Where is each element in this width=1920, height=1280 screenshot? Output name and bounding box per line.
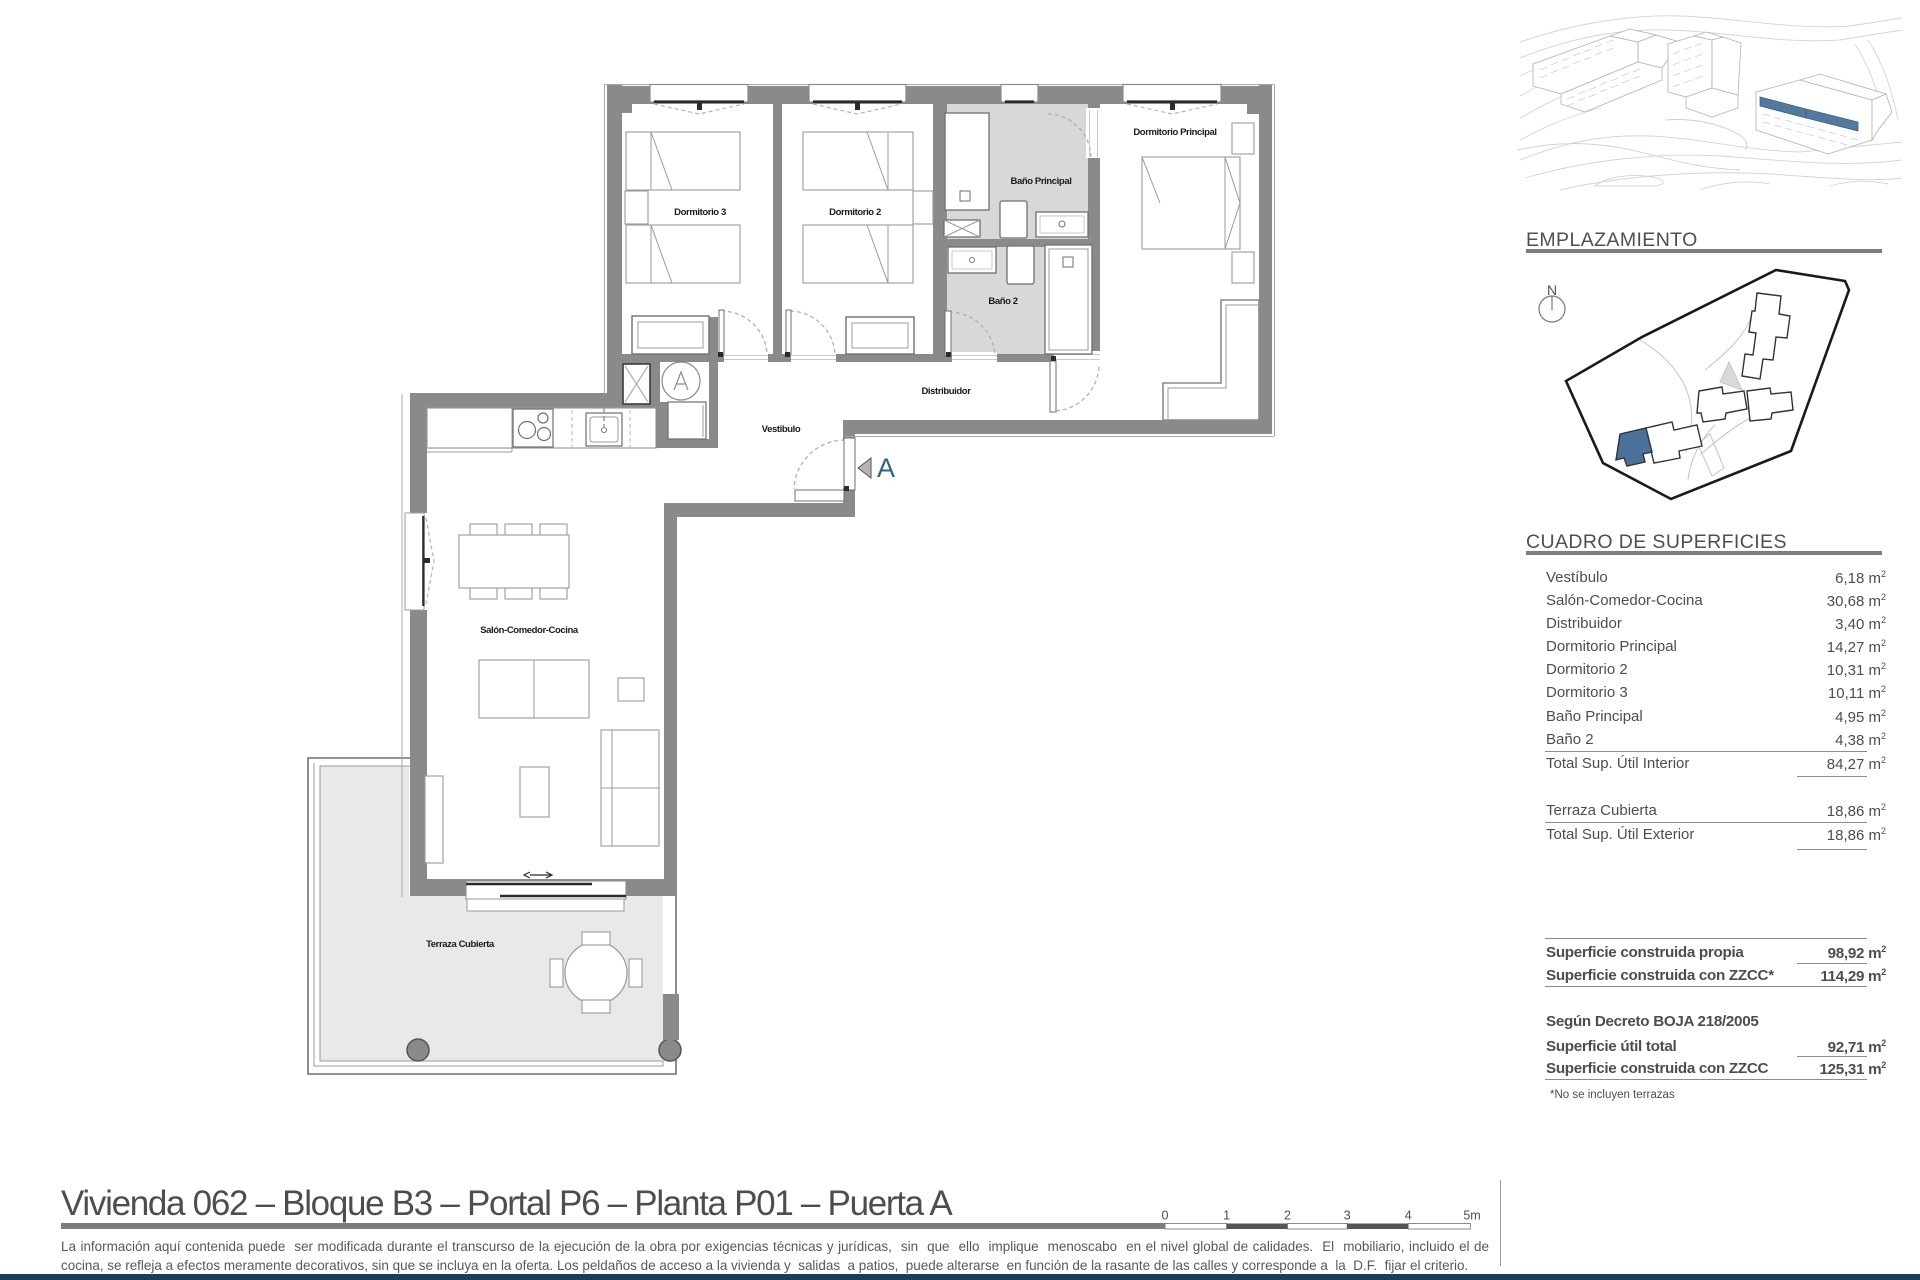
- svg-text:0: 0: [1162, 1209, 1169, 1223]
- svg-text:Salón-Comedor-Cocina: Salón-Comedor-Cocina: [480, 625, 579, 636]
- svg-text:Distribuidor: Distribuidor: [921, 386, 971, 397]
- svg-text:5m: 5m: [1463, 1209, 1480, 1223]
- svg-text:A: A: [877, 453, 895, 483]
- svg-text:Dormitorio Principal: Dormitorio Principal: [1133, 127, 1216, 138]
- svg-text:Dormitorio 2: Dormitorio 2: [829, 207, 881, 218]
- svg-text:Baño Principal: Baño Principal: [1011, 176, 1072, 187]
- svg-text:Terraza Cubierta: Terraza Cubierta: [426, 939, 495, 950]
- svg-text:4: 4: [1405, 1209, 1412, 1223]
- svg-text:Baño 2: Baño 2: [988, 296, 1017, 307]
- svg-text:2: 2: [1284, 1209, 1291, 1223]
- svg-text:3: 3: [1344, 1209, 1351, 1223]
- svg-text:Dormitorio 3: Dormitorio 3: [674, 207, 726, 218]
- svg-text:Vestibulo: Vestibulo: [762, 424, 801, 435]
- svg-text:1: 1: [1223, 1209, 1230, 1223]
